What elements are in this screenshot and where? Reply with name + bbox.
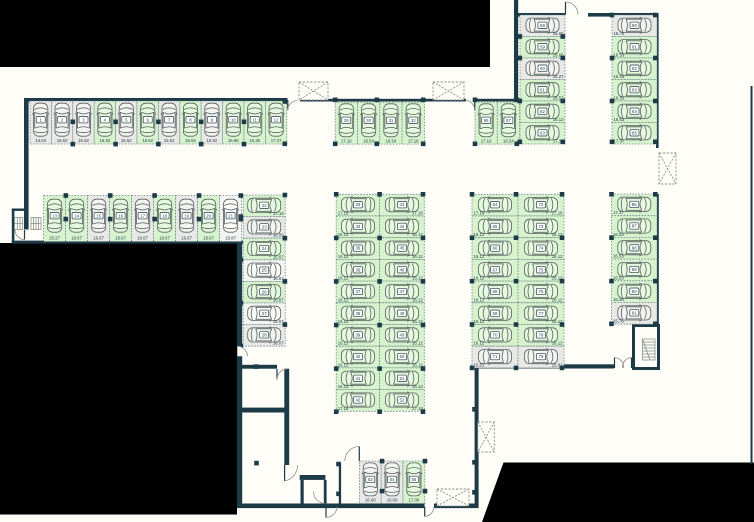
svg-text:15.81: 15.81 (474, 362, 485, 367)
svg-text:16.53: 16.53 (614, 117, 625, 122)
svg-text:16.53: 16.53 (613, 275, 624, 280)
svg-text:16.12: 16.12 (338, 341, 349, 346)
svg-text:17.18: 17.18 (338, 211, 349, 216)
svg-text:17.00: 17.00 (409, 498, 420, 503)
svg-text:25: 25 (262, 268, 267, 273)
svg-text:17.16: 17.16 (481, 138, 492, 143)
svg-text:16.53: 16.53 (614, 53, 625, 58)
svg-text:12: 12 (274, 117, 279, 122)
svg-text:17.18: 17.18 (273, 211, 284, 216)
svg-text:16.12: 16.12 (552, 297, 563, 302)
svg-text:66: 66 (493, 246, 498, 251)
svg-text:89: 89 (632, 267, 637, 272)
svg-text:16.67: 16.67 (273, 319, 284, 324)
svg-text:17.18: 17.18 (338, 406, 349, 411)
svg-text:88: 88 (632, 245, 637, 250)
svg-text:19: 19 (184, 213, 189, 218)
svg-text:15.52: 15.52 (121, 138, 132, 143)
svg-text:62: 62 (540, 109, 545, 114)
svg-text:16.12: 16.12 (338, 276, 349, 281)
svg-text:26: 26 (262, 289, 267, 294)
svg-text:17.16: 17.16 (341, 138, 352, 143)
svg-text:15.52: 15.52 (78, 138, 89, 143)
svg-text:27: 27 (262, 311, 267, 316)
svg-text:29: 29 (344, 118, 349, 123)
svg-text:17: 17 (140, 213, 145, 218)
svg-text:17.16: 17.16 (408, 138, 419, 143)
svg-text:15.52: 15.52 (164, 138, 175, 143)
svg-text:16.35: 16.35 (249, 138, 260, 143)
svg-text:16.67: 16.67 (71, 236, 82, 241)
svg-text:52: 52 (400, 398, 405, 403)
svg-text:16.12: 16.12 (338, 319, 349, 324)
svg-text:53: 53 (368, 477, 373, 482)
svg-text:76: 76 (539, 289, 544, 294)
svg-text:46: 46 (400, 267, 405, 272)
svg-text:36: 36 (355, 267, 360, 272)
svg-text:41: 41 (355, 376, 360, 381)
svg-text:17.16: 17.16 (552, 211, 563, 216)
svg-text:17.16: 17.16 (474, 211, 485, 216)
svg-text:16.53: 16.53 (613, 232, 624, 237)
svg-text:71: 71 (493, 354, 498, 359)
svg-text:16.12: 16.12 (412, 384, 423, 389)
svg-text:87: 87 (632, 224, 637, 229)
svg-text:17.37: 17.37 (271, 138, 282, 143)
svg-text:49: 49 (400, 333, 405, 338)
svg-text:80: 80 (632, 23, 637, 28)
svg-text:65: 65 (493, 224, 498, 229)
svg-text:16.53: 16.53 (614, 74, 625, 79)
svg-text:40: 40 (355, 354, 360, 359)
svg-text:16.54: 16.54 (503, 138, 514, 143)
svg-text:15.52: 15.52 (142, 138, 153, 143)
svg-text:17.37: 17.37 (613, 210, 624, 215)
svg-text:30: 30 (366, 118, 371, 123)
svg-text:16.12: 16.12 (474, 297, 485, 302)
svg-text:84: 84 (632, 109, 637, 114)
svg-text:10: 10 (231, 117, 236, 122)
svg-text:16.12: 16.12 (412, 254, 423, 259)
svg-text:48: 48 (400, 311, 405, 316)
svg-text:33: 33 (355, 202, 360, 207)
svg-text:16.67: 16.67 (273, 276, 284, 281)
svg-text:16.12: 16.12 (338, 384, 349, 389)
svg-text:16.12: 16.12 (412, 297, 423, 302)
svg-text:13: 13 (52, 213, 57, 218)
svg-text:16.53: 16.53 (613, 254, 624, 259)
svg-text:45: 45 (400, 246, 405, 251)
svg-text:16.26: 16.26 (613, 297, 624, 302)
svg-text:18: 18 (162, 213, 167, 218)
svg-text:22: 22 (262, 203, 267, 208)
svg-text:16.12: 16.12 (338, 362, 349, 367)
svg-text:61: 61 (540, 87, 545, 92)
svg-text:16.12: 16.12 (474, 254, 485, 259)
svg-text:16.67: 16.67 (203, 236, 214, 241)
svg-text:78: 78 (539, 333, 544, 338)
svg-text:68: 68 (493, 289, 498, 294)
svg-text:21: 21 (228, 213, 233, 218)
svg-text:16.12: 16.12 (338, 232, 349, 237)
svg-text:16.12: 16.12 (474, 232, 485, 237)
svg-text:16.86: 16.86 (228, 138, 239, 143)
svg-text:77: 77 (539, 311, 544, 316)
svg-text:16.12: 16.12 (338, 297, 349, 302)
svg-text:20.27: 20.27 (49, 236, 60, 241)
svg-text:16: 16 (118, 213, 123, 218)
svg-text:81: 81 (632, 44, 637, 49)
svg-text:23: 23 (262, 225, 267, 230)
svg-text:47: 47 (400, 289, 405, 294)
svg-text:15.52: 15.52 (207, 138, 218, 143)
svg-text:67: 67 (493, 267, 498, 272)
svg-text:16.12: 16.12 (474, 276, 485, 281)
svg-text:50: 50 (400, 354, 405, 359)
svg-text:16.53: 16.53 (614, 96, 625, 101)
svg-text:31: 31 (388, 118, 393, 123)
svg-text:69: 69 (493, 311, 498, 316)
svg-text:56: 56 (484, 118, 489, 123)
svg-text:15.52: 15.52 (57, 138, 68, 143)
svg-text:85: 85 (632, 130, 637, 135)
svg-text:24: 24 (262, 246, 267, 251)
svg-text:16.12: 16.12 (552, 341, 563, 346)
svg-text:15: 15 (96, 213, 101, 218)
svg-text:70: 70 (493, 333, 498, 338)
svg-text:16.67: 16.67 (181, 236, 192, 241)
svg-text:75: 75 (539, 267, 544, 272)
svg-text:16.67: 16.67 (137, 236, 148, 241)
svg-text:64: 64 (493, 202, 498, 207)
svg-text:91: 91 (632, 311, 637, 316)
svg-text:37: 37 (355, 289, 360, 294)
svg-text:16.54: 16.54 (386, 138, 397, 143)
svg-text:39: 39 (355, 333, 360, 338)
svg-text:16.12: 16.12 (553, 117, 564, 122)
svg-text:58: 58 (540, 23, 545, 28)
svg-text:16.67: 16.67 (159, 236, 170, 241)
svg-text:15.76: 15.76 (613, 319, 624, 324)
svg-text:16.67: 16.67 (93, 236, 104, 241)
svg-text:59: 59 (540, 44, 545, 49)
svg-text:17.18: 17.18 (412, 211, 423, 216)
svg-text:32: 32 (411, 118, 416, 123)
svg-text:16.87: 16.87 (225, 236, 236, 241)
svg-text:16.12: 16.12 (552, 254, 563, 259)
svg-text:86: 86 (632, 202, 637, 207)
svg-text:16.07: 16.07 (273, 341, 284, 346)
svg-text:42: 42 (355, 398, 360, 403)
svg-text:16.12: 16.12 (474, 319, 485, 324)
svg-text:79: 79 (539, 354, 544, 359)
svg-text:15.52: 15.52 (100, 138, 111, 143)
svg-text:14: 14 (74, 213, 79, 218)
svg-text:35: 35 (355, 246, 360, 251)
svg-text:16.00: 16.00 (387, 498, 398, 503)
svg-text:90: 90 (632, 289, 637, 294)
svg-text:17.37: 17.37 (614, 139, 625, 144)
svg-text:16.00: 16.00 (273, 233, 284, 238)
svg-text:16.54: 16.54 (363, 138, 374, 143)
svg-text:72: 72 (539, 202, 544, 207)
svg-text:16.00: 16.00 (365, 498, 376, 503)
svg-text:73: 73 (539, 224, 544, 229)
svg-text:20: 20 (206, 213, 211, 218)
svg-text:55: 55 (411, 477, 416, 482)
svg-text:63: 63 (540, 130, 545, 135)
svg-text:82: 82 (632, 66, 637, 71)
svg-text:38: 38 (355, 311, 360, 316)
svg-text:44: 44 (400, 224, 405, 229)
svg-text:14.04: 14.04 (35, 138, 46, 143)
svg-text:74: 74 (539, 246, 544, 251)
svg-text:57: 57 (506, 118, 511, 123)
svg-text:15.52: 15.52 (185, 138, 196, 143)
svg-text:16.67: 16.67 (273, 298, 284, 303)
svg-text:16.67: 16.67 (115, 236, 126, 241)
svg-text:16.27: 16.27 (553, 74, 564, 79)
svg-text:34: 34 (355, 224, 360, 229)
svg-text:16.75: 16.75 (614, 31, 625, 36)
svg-text:16.12: 16.12 (412, 341, 423, 346)
svg-text:60: 60 (540, 66, 545, 71)
svg-text:83: 83 (632, 87, 637, 92)
svg-text:51: 51 (400, 376, 405, 381)
svg-text:16.67: 16.67 (273, 254, 284, 259)
svg-text:28: 28 (262, 333, 267, 338)
svg-text:16.12: 16.12 (474, 341, 485, 346)
svg-text:11: 11 (252, 117, 257, 122)
svg-text:54: 54 (390, 477, 395, 482)
svg-text:43: 43 (400, 202, 405, 207)
svg-text:16.12: 16.12 (338, 254, 349, 259)
